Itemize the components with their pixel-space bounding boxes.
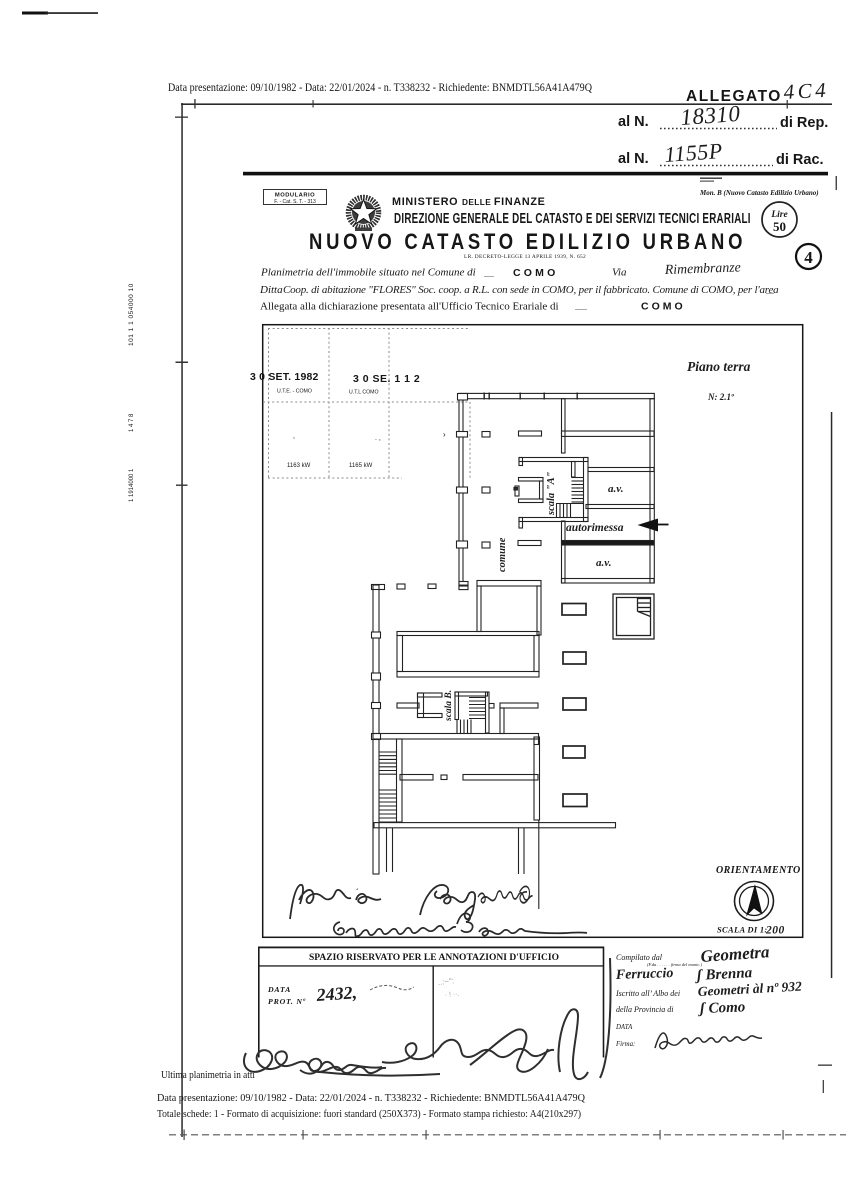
svg-text:N: 2.1º: N: 2.1º <box>707 392 734 402</box>
svg-text:.....: ..... <box>484 270 494 279</box>
svg-text:50: 50 <box>773 219 786 234</box>
svg-text:SPAZIO RISERVATO PER LE ANNOTA: SPAZIO RISERVATO PER LE ANNOTAZIONI D'UF… <box>309 952 559 963</box>
svg-text:DATA: DATA <box>615 1024 633 1031</box>
svg-text:3 0 SE. 1 1 2: 3 0 SE. 1 1 2 <box>353 373 420 385</box>
svg-text:· ! ··.: · ! ··. <box>445 991 460 999</box>
svg-text:18310: 18310 <box>680 101 742 130</box>
svg-text:COMO: COMO <box>641 301 686 313</box>
svg-text:Firma:: Firma: <box>615 1041 635 1048</box>
svg-text:2432,: 2432, <box>315 982 358 1005</box>
svg-text:ʃ Como: ʃ Como <box>698 999 746 1017</box>
svg-text:,: , <box>293 433 295 440</box>
svg-text:. ,: . , <box>375 435 381 442</box>
svg-text:Data presentazione: 09/10/1982: Data presentazione: 09/10/1982 - Data: 2… <box>157 1092 585 1104</box>
svg-text:Rimembranze: Rimembranze <box>664 259 741 277</box>
svg-text:U.T.E. - COMO: U.T.E. - COMO <box>277 389 312 395</box>
svg-text:della Provincia di: della Provincia di <box>616 1005 673 1014</box>
svg-text:101 1 1 054000 10: 101 1 1 054000 10 <box>128 283 135 346</box>
svg-text:1 1914000 1: 1 1914000 1 <box>129 468 135 502</box>
svg-text:DIREZIONE GENERALE DEL CATASTO: DIREZIONE GENERALE DEL CATASTO E DEI SER… <box>394 210 751 226</box>
svg-text:Via: Via <box>612 267 627 279</box>
svg-text:Compilato dal: Compilato dal <box>616 953 663 962</box>
svg-text:4C4: 4C4 <box>783 78 830 104</box>
svg-text:3 0 SET. 1982: 3 0 SET. 1982 <box>250 371 319 383</box>
svg-text:1163 kW: 1163 kW <box>287 463 311 469</box>
svg-text:4: 4 <box>804 248 813 267</box>
svg-text:LR. DECRETO-LEGGE 13 APRILE 19: LR. DECRETO-LEGGE 13 APRILE 1939, N. 652 <box>464 254 586 260</box>
svg-text:1165 kW: 1165 kW <box>349 463 373 469</box>
svg-text:SCALA DI 1:: SCALA DI 1: <box>717 925 768 935</box>
svg-text:autorimessa: autorimessa <box>566 522 624 534</box>
svg-text:Allegata alla dichiarazione pr: Allegata alla dichiarazione presentata a… <box>260 301 559 313</box>
svg-text:..:~":: ..:~": <box>437 976 454 987</box>
svg-text:1 4 7 8: 1 4 7 8 <box>129 413 135 432</box>
svg-text:scala B.: scala B. <box>444 690 454 722</box>
svg-text:....: .... <box>766 287 774 296</box>
svg-text:Piano terra: Piano terra <box>687 359 751 374</box>
svg-text:a.v.: a.v. <box>608 483 623 495</box>
svg-text:MINISTERO DELLE FINANZE: MINISTERO DELLE FINANZE <box>392 196 546 208</box>
svg-text:Mon. B (Nuovo Catasto Edilizio: Mon. B (Nuovo Catasto Edilizio Urbano) <box>699 189 819 197</box>
svg-text:Ultima planimetria in atti: Ultima planimetria in atti <box>161 1070 255 1081</box>
svg-text:Coop. di abitazione "FLORES" S: Coop. di abitazione "FLORES" Soc. coop. … <box>283 284 779 296</box>
svg-text:al N.: al N. <box>618 151 649 167</box>
svg-text:1155P: 1155P <box>664 138 724 167</box>
svg-text:Data presentazione: 09/10/1982: Data presentazione: 09/10/1982 - Data: 2… <box>168 82 592 94</box>
svg-text:PROT. Nº: PROT. Nº <box>268 997 306 1006</box>
svg-text:a.v.: a.v. <box>596 557 611 569</box>
svg-text:......: ...... <box>575 303 587 312</box>
svg-text:scala "A": scala "A" <box>546 471 557 516</box>
svg-text:Iscritto all’ Albo dei: Iscritto all’ Albo dei <box>615 989 680 998</box>
svg-text:Planimetria dell'immobile situ: Planimetria dell'immobile situato nel Co… <box>260 267 476 279</box>
svg-text:di Rac.: di Rac. <box>776 152 824 168</box>
svg-text:comune: comune <box>497 537 508 572</box>
svg-text:F. - Cat. S. T. - 313: F. - Cat. S. T. - 313 <box>274 199 316 205</box>
svg-text:DATA: DATA <box>267 985 291 994</box>
svg-text:Totale schede: 1 - Formato di: Totale schede: 1 - Formato di acquisizio… <box>157 1108 581 1120</box>
svg-text:Ditta: Ditta <box>259 284 283 296</box>
svg-text:COMO: COMO <box>513 267 558 279</box>
svg-text:›: › <box>443 430 446 439</box>
svg-text:Ferruccio: Ferruccio <box>615 966 674 983</box>
svg-text:ORIENTAMENTO: ORIENTAMENTO <box>716 865 801 876</box>
svg-text:200: 200 <box>765 925 785 937</box>
svg-text:MODULARIO: MODULARIO <box>275 193 315 199</box>
svg-text:Geometra: Geometra <box>700 942 771 966</box>
svg-text:U.T.L COMO: U.T.L COMO <box>349 390 379 396</box>
svg-text:di Rep.: di Rep. <box>780 115 828 131</box>
svg-text:al N.: al N. <box>618 114 649 130</box>
svg-text:NUOVO CATASTO EDILIZIO URBANO: NUOVO CATASTO EDILIZIO URBANO <box>309 229 746 254</box>
